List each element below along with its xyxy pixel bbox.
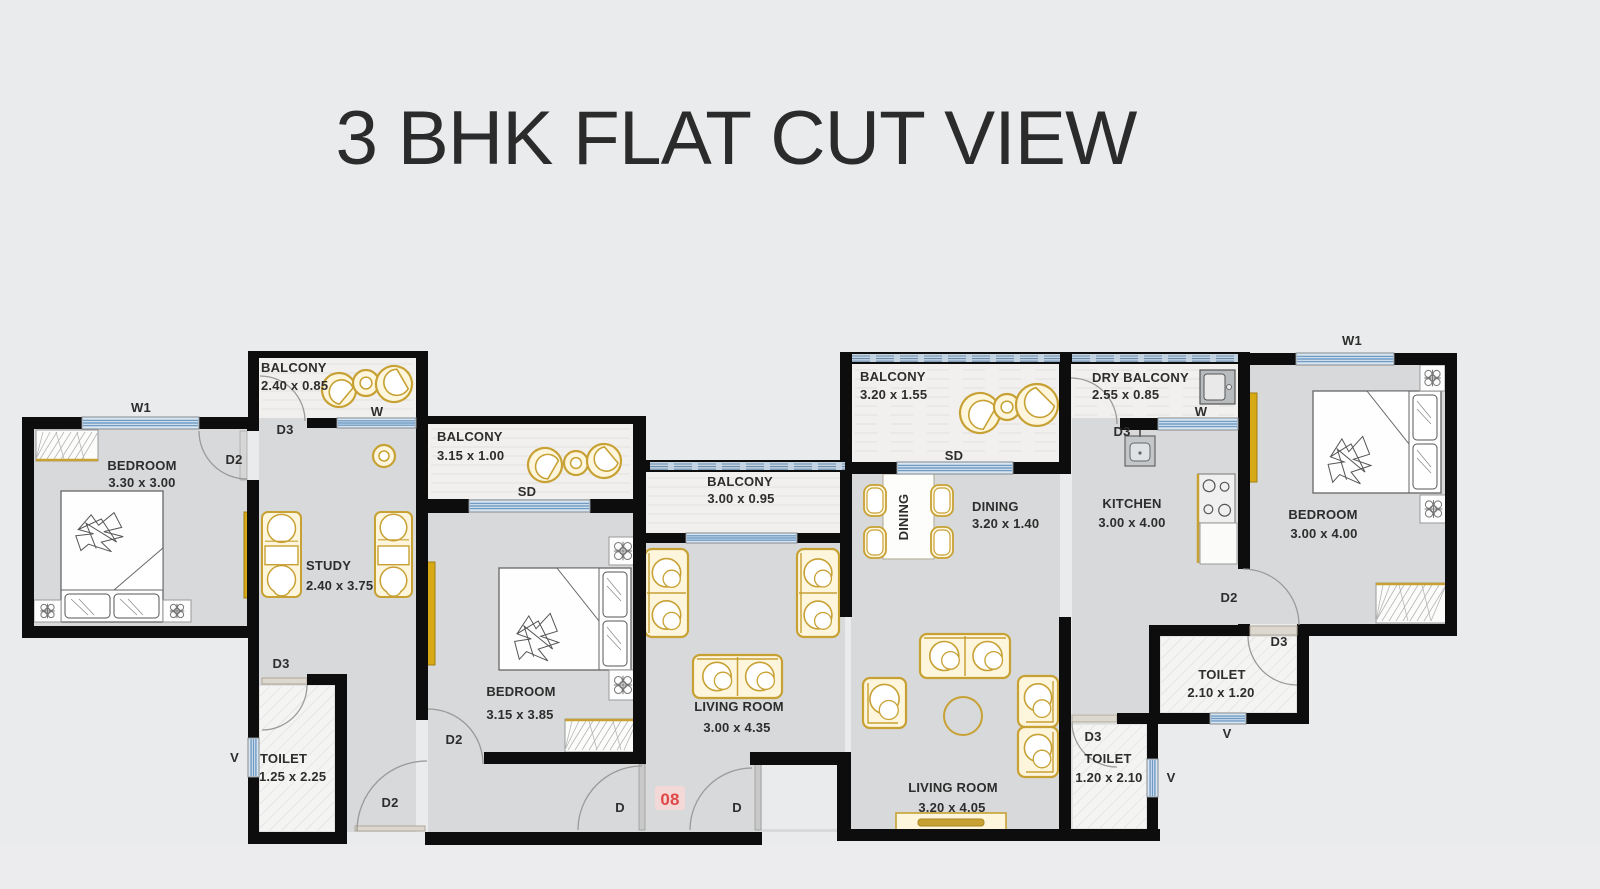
svg-text:TOILET: TOILET bbox=[1084, 751, 1131, 766]
svg-text:DINING: DINING bbox=[896, 494, 911, 541]
svg-text:BALCONY: BALCONY bbox=[860, 369, 926, 384]
svg-text:D3: D3 bbox=[276, 422, 293, 437]
svg-text:3.20 x 4.05: 3.20 x 4.05 bbox=[918, 800, 985, 815]
svg-text:W: W bbox=[1195, 404, 1208, 419]
svg-text:D: D bbox=[615, 800, 625, 815]
svg-text:BALCONY: BALCONY bbox=[261, 360, 327, 375]
svg-text:BEDROOM: BEDROOM bbox=[107, 458, 176, 473]
svg-text:3.00 x 0.95: 3.00 x 0.95 bbox=[707, 491, 774, 506]
svg-text:LIVING ROOM: LIVING ROOM bbox=[694, 699, 784, 714]
svg-text:3.20 x 1.55: 3.20 x 1.55 bbox=[860, 387, 927, 402]
svg-text:D2: D2 bbox=[381, 795, 398, 810]
svg-text:D2: D2 bbox=[1220, 590, 1237, 605]
svg-text:3.00 x 4.00: 3.00 x 4.00 bbox=[1098, 515, 1165, 530]
svg-text:D: D bbox=[732, 800, 742, 815]
svg-text:D3: D3 bbox=[1113, 424, 1130, 439]
svg-text:BALCONY: BALCONY bbox=[437, 429, 503, 444]
svg-text:08: 08 bbox=[660, 790, 679, 809]
svg-text:W1: W1 bbox=[1342, 333, 1362, 348]
svg-text:3.00 x 4.00: 3.00 x 4.00 bbox=[1290, 526, 1357, 541]
svg-text:3.30 x 3.00: 3.30 x 3.00 bbox=[108, 475, 175, 490]
svg-text:SD: SD bbox=[518, 484, 536, 499]
svg-text:2.10 x 1.20: 2.10 x 1.20 bbox=[1187, 685, 1254, 700]
svg-text:D3: D3 bbox=[272, 656, 289, 671]
svg-text:1.20 x 2.10: 1.20 x 2.10 bbox=[1075, 770, 1142, 785]
svg-text:W1: W1 bbox=[131, 400, 151, 415]
svg-text:DRY BALCONY: DRY BALCONY bbox=[1092, 370, 1189, 385]
svg-text:SD: SD bbox=[945, 448, 963, 463]
svg-text:1.25 x 2.25: 1.25 x 2.25 bbox=[259, 769, 326, 784]
svg-text:2.40 x 3.75: 2.40 x 3.75 bbox=[306, 578, 373, 593]
svg-text:3.00 x 4.35: 3.00 x 4.35 bbox=[703, 720, 770, 735]
svg-text:2.55 x 0.85: 2.55 x 0.85 bbox=[1092, 387, 1159, 402]
svg-text:V: V bbox=[1167, 770, 1176, 785]
svg-text:D3: D3 bbox=[1270, 634, 1287, 649]
svg-text:V: V bbox=[1223, 726, 1232, 741]
svg-text:3.20 x 1.40: 3.20 x 1.40 bbox=[972, 516, 1039, 531]
svg-text:D2: D2 bbox=[445, 732, 462, 747]
svg-text:BALCONY: BALCONY bbox=[707, 474, 773, 489]
svg-text:TOILET: TOILET bbox=[260, 751, 307, 766]
svg-text:3.15 x 1.00: 3.15 x 1.00 bbox=[437, 448, 504, 463]
svg-text:DINING: DINING bbox=[972, 499, 1019, 514]
svg-text:BEDROOM: BEDROOM bbox=[486, 684, 555, 699]
svg-text:W: W bbox=[371, 404, 384, 419]
svg-text:LIVING ROOM: LIVING ROOM bbox=[908, 780, 998, 795]
svg-text:STUDY: STUDY bbox=[306, 558, 351, 573]
svg-text:2.40 x 0.85: 2.40 x 0.85 bbox=[261, 378, 328, 393]
svg-text:V: V bbox=[230, 750, 239, 765]
svg-text:D2: D2 bbox=[225, 452, 242, 467]
svg-text:BEDROOM: BEDROOM bbox=[1288, 507, 1357, 522]
svg-text:3.15 x 3.85: 3.15 x 3.85 bbox=[486, 707, 553, 722]
svg-text:D3: D3 bbox=[1084, 729, 1101, 744]
svg-text:TOILET: TOILET bbox=[1198, 667, 1245, 682]
svg-text:KITCHEN: KITCHEN bbox=[1102, 496, 1161, 511]
